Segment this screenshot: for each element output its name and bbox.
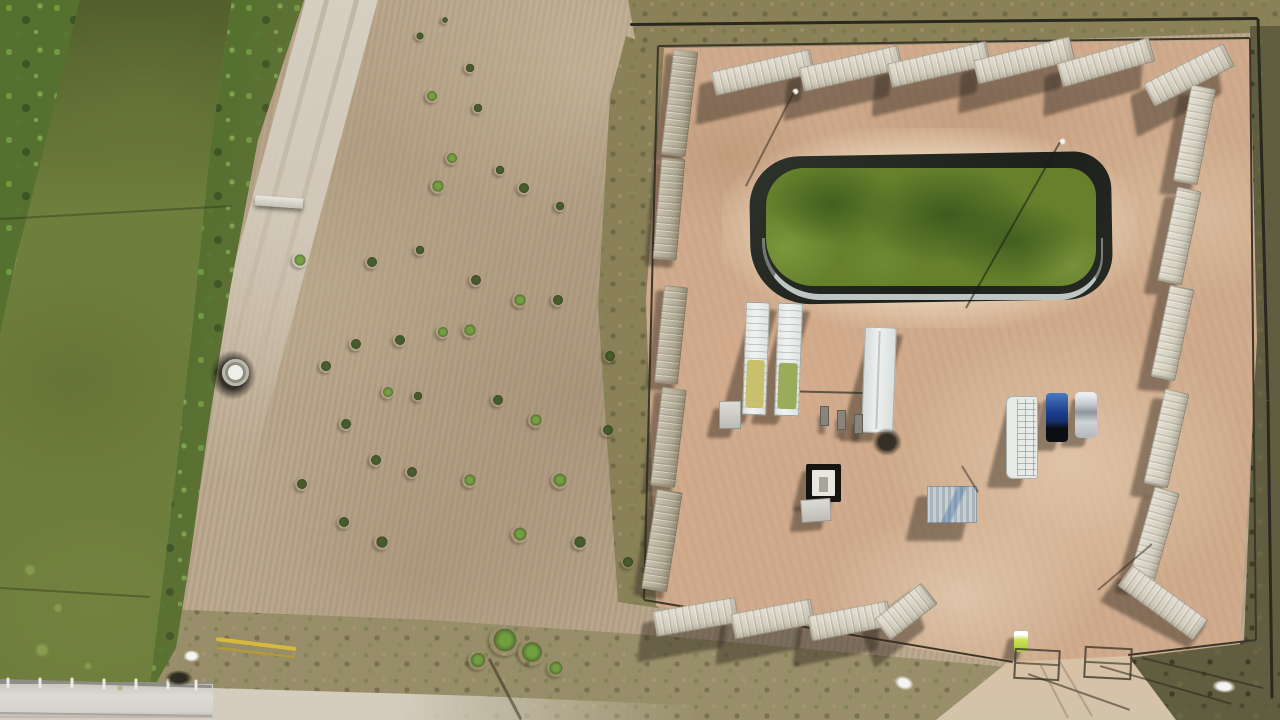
- aerial-photo-well-pad: [0, 0, 1280, 720]
- vignette: [0, 0, 1280, 720]
